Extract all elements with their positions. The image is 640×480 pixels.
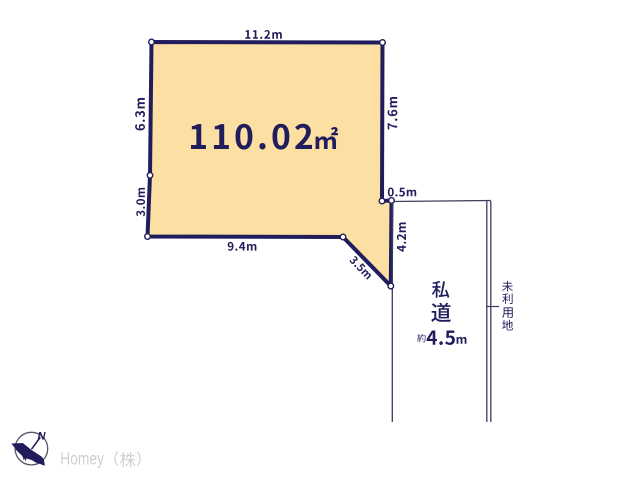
svg-text:Homey: Homey bbox=[60, 450, 104, 469]
svg-text:N: N bbox=[38, 431, 47, 443]
